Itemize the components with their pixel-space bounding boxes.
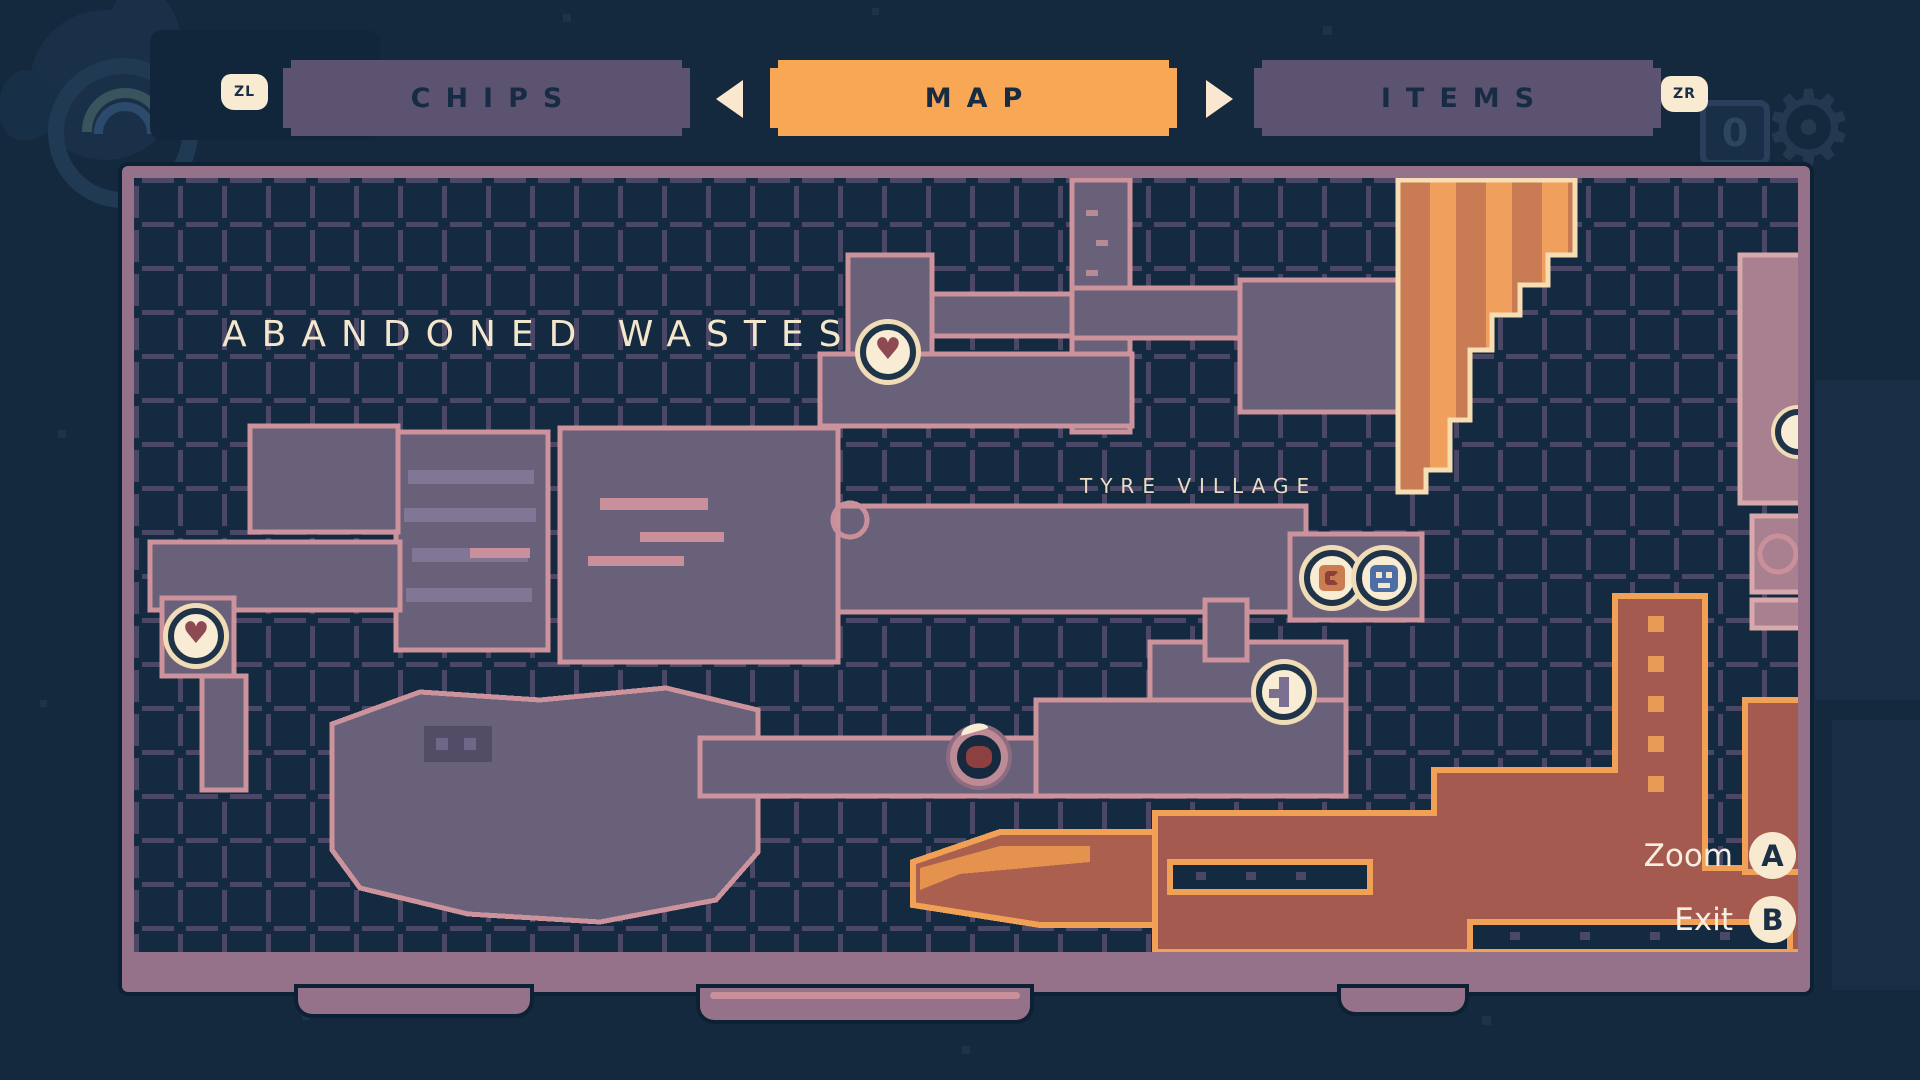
counter-badge: 0 [1700,100,1770,166]
tab-map[interactable]: MAP [770,60,1177,136]
heart-icon: ♥ [183,619,210,649]
button-b-icon[interactable]: B [1749,896,1796,943]
map-marker-player-position [950,728,1008,786]
next-tab-arrow-icon[interactable] [1206,80,1233,118]
panel-handle [1341,988,1465,1012]
shop-icon [1319,565,1345,591]
panel-handle [298,988,530,1014]
gear-icon: ⚙ [1762,76,1855,180]
map-marker-shop [1304,550,1360,606]
shoulder-button-zr[interactable]: ZR [1661,76,1708,112]
exit-action[interactable]: Exit B [1674,896,1796,943]
map-marker-save-station [1356,550,1412,606]
button-a-icon[interactable]: A [1749,832,1796,879]
panel-handle [700,988,1030,1020]
save-icon [1370,565,1398,592]
zoom-action[interactable]: Zoom A [1644,832,1796,879]
tab-chips[interactable]: CHIPS [283,60,690,136]
map-artwork [134,178,1798,952]
map-marker-health-station: ♥ [168,608,224,664]
game-screen: 0 ⚙ ZL CHIPS MAP ITEMS ZR [0,0,1920,1080]
heart-icon: ♥ [875,335,902,365]
prev-tab-arrow-icon[interactable] [716,80,743,118]
key-icon [1279,677,1289,707]
player-core [966,746,992,768]
map-marker-ability [1256,664,1312,720]
background-machinery [1815,380,1920,700]
map-marker-health-station: ♥ [860,324,916,380]
region-title: ABANDONED WASTES [222,314,856,355]
map-viewport[interactable]: ABANDONED WASTES TYRE VILLAGE ♥♥ [134,178,1798,952]
tab-items[interactable]: ITEMS [1254,60,1661,136]
zoom-action-label: Zoom [1644,838,1733,874]
shoulder-button-zl[interactable]: ZL [221,74,268,110]
exit-action-label: Exit [1674,902,1733,938]
area-label: TYRE VILLAGE [1080,474,1317,498]
background-machinery [1832,720,1920,990]
